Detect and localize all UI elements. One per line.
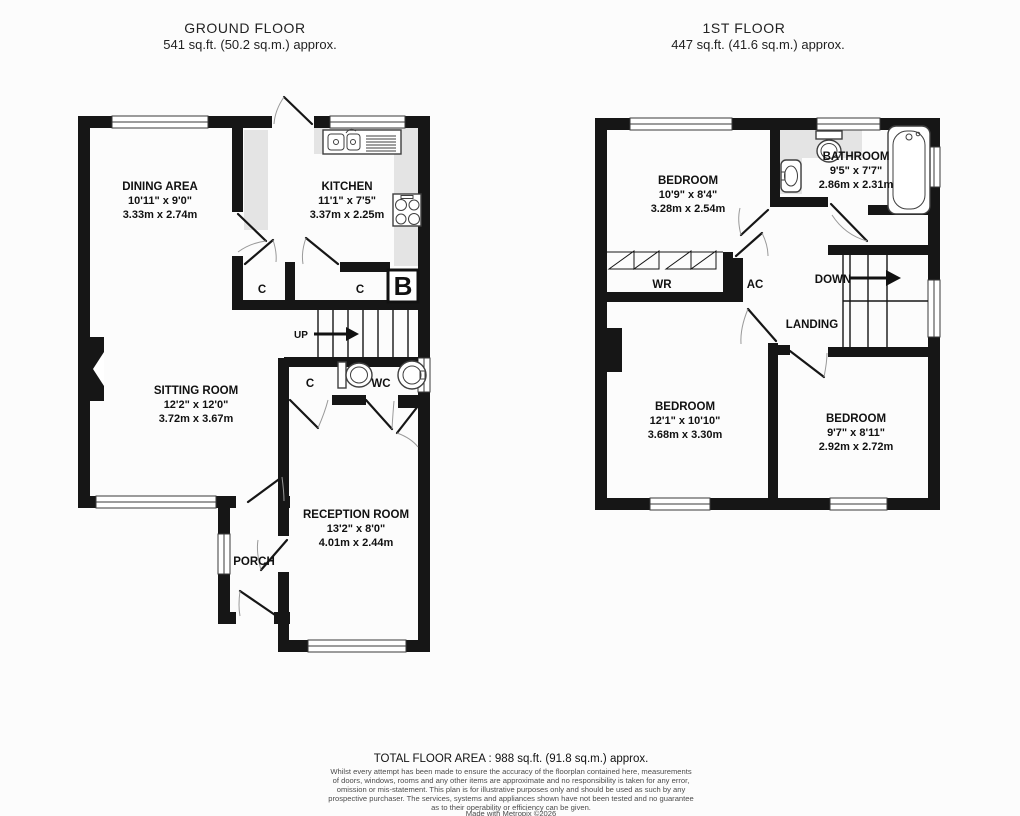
- landing-label: LANDING: [786, 319, 838, 331]
- kitchen-metric: 3.37m x 2.25m: [310, 209, 385, 221]
- total-floor-area: TOTAL FLOOR AREA : 988 sq.ft. (91.8 sq.m…: [374, 753, 649, 765]
- porch-front-door: [239, 591, 278, 617]
- bathroom-door: [831, 204, 867, 241]
- bedroom1-metric: 3.28m x 2.54m: [651, 203, 726, 215]
- disclaimer-line-2: of doors, windows, rooms and any other i…: [333, 776, 690, 785]
- ground-floor-title-block: GROUND FLOOR 541 sq.ft. (50.2 sq.m.) app…: [163, 20, 336, 52]
- porch-label: PORCH: [233, 556, 275, 568]
- bathroom-metric: 2.86m x 2.31m: [819, 179, 894, 191]
- dining-name: DINING AREA: [122, 181, 198, 193]
- ground-floor-plan: UP B: [78, 97, 430, 652]
- bedroom2-imperial: 12'1" x 10'10": [650, 415, 721, 427]
- dining-metric: 3.33m x 2.74m: [123, 209, 198, 221]
- closet3-label: C: [306, 378, 314, 390]
- up-arrow-icon: [346, 327, 359, 341]
- sitting-metric: 3.72m x 3.67m: [159, 413, 234, 425]
- front-door: [274, 97, 312, 124]
- wc-door: [366, 400, 394, 429]
- reception-door: [397, 406, 418, 447]
- sitting-name: SITTING ROOM: [154, 385, 238, 397]
- bedroom2-door: [741, 309, 776, 344]
- floorplan-svg: GROUND FLOOR 541 sq.ft. (50.2 sq.m.) app…: [0, 0, 1020, 816]
- disclaimer-line-1: Whilst every attempt has been made to en…: [330, 767, 692, 776]
- ground-floor-title: GROUND FLOOR: [184, 20, 306, 36]
- bedroom1-door: [739, 208, 768, 235]
- bedroom3-door: [790, 351, 827, 377]
- bathroom-name: BATHROOM: [823, 151, 890, 163]
- kitchen-sink: [323, 129, 401, 154]
- wc-toilet: [338, 362, 372, 388]
- disclaimer-line-4: prospective purchaser. The services, sys…: [328, 794, 693, 803]
- stairs-up: UP: [294, 310, 408, 357]
- bedroom2-name: BEDROOM: [655, 401, 715, 413]
- bedroom1-imperial: 10'9" x 8'4": [659, 189, 717, 201]
- credit-line: Made with Metropix ©2026: [466, 809, 556, 816]
- down-label: DOWN: [815, 274, 851, 286]
- bedroom1-name: BEDROOM: [658, 175, 718, 187]
- closet1-door: [245, 240, 276, 264]
- up-label: UP: [294, 330, 308, 341]
- wc-basin: [398, 361, 426, 389]
- closet1-label: C: [258, 284, 266, 296]
- reception-name: RECEPTION ROOM: [303, 509, 409, 521]
- fireplace: [88, 337, 104, 401]
- bedroom3-imperial: 9'7" x 8'11": [827, 427, 885, 439]
- footer: TOTAL FLOOR AREA : 988 sq.ft. (91.8 sq.m…: [328, 753, 693, 816]
- first-floor-title: 1ST FLOOR: [703, 20, 786, 36]
- boiler-label: B: [394, 271, 413, 301]
- airing-cupboard-door: [736, 233, 768, 256]
- stairs-down: DOWN: [815, 255, 928, 347]
- bathroom-basin: [781, 160, 801, 192]
- boiler-badge: B: [388, 270, 418, 302]
- hob: [393, 194, 421, 226]
- bedroom3-metric: 2.92m x 2.72m: [819, 441, 894, 453]
- sitting-imperial: 12'2" x 12'0": [164, 399, 229, 411]
- kitchen-door: [302, 238, 338, 264]
- bathroom-imperial: 9'5" x 7'7": [830, 165, 882, 177]
- wardrobe-label: WR: [652, 279, 672, 291]
- closet3-door: [290, 400, 328, 428]
- ground-floor-area: 541 sq.ft. (50.2 sq.m.) approx.: [163, 37, 336, 52]
- down-arrow-icon: [886, 270, 901, 286]
- first-floor-plan: DOWN BEDROOM 10: [595, 118, 940, 510]
- reception-metric: 4.01m x 2.44m: [319, 537, 394, 549]
- bedroom3-name: BEDROOM: [826, 413, 886, 425]
- wc-label: WC: [371, 378, 390, 390]
- reception-imperial: 13'2" x 8'0": [327, 523, 385, 535]
- first-floor-area: 447 sq.ft. (41.6 sq.m.) approx.: [671, 37, 844, 52]
- dining-imperial: 10'11" x 9'0": [128, 195, 192, 207]
- airing-cupboard-label: AC: [747, 279, 764, 291]
- kitchen-name: KITCHEN: [321, 181, 372, 193]
- floorplan-page: GROUND FLOOR 541 sq.ft. (50.2 sq.m.) app…: [0, 0, 1020, 816]
- first-floor-title-block: 1ST FLOOR 447 sq.ft. (41.6 sq.m.) approx…: [671, 20, 844, 52]
- closet2-label: C: [356, 284, 364, 296]
- disclaimer-line-3: omission or mis-statement. This plan is …: [337, 785, 686, 794]
- bedroom2-metric: 3.68m x 3.30m: [648, 429, 723, 441]
- wardrobe-symbol: [607, 251, 723, 269]
- bath: [888, 126, 930, 214]
- kitchen-imperial: 11'1" x 7'5": [318, 195, 376, 207]
